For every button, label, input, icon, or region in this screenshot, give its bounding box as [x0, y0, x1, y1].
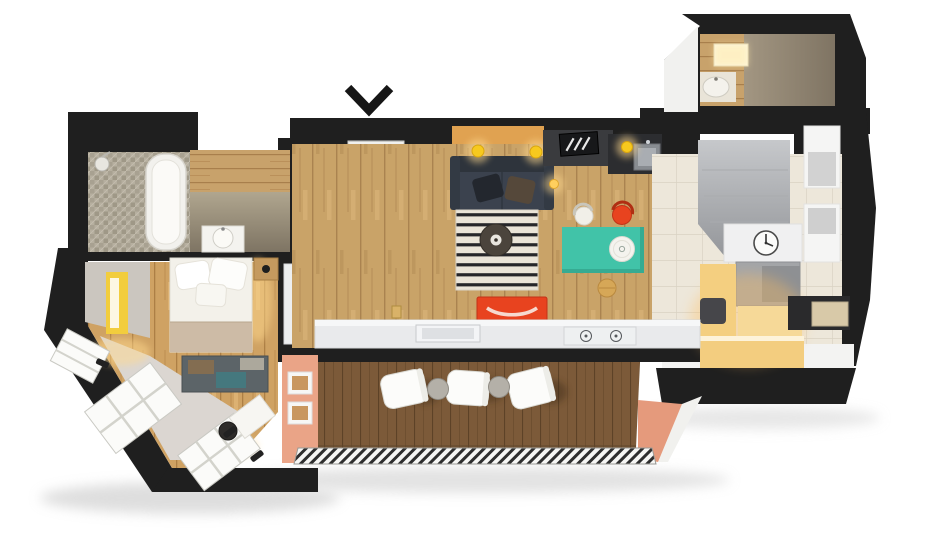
- wall-niche-upper: [804, 126, 840, 188]
- appliance-front: [812, 302, 848, 326]
- wall-niche-lower: [804, 204, 840, 262]
- wall-bay-bottom: [152, 468, 318, 492]
- striped-walkway: [294, 448, 656, 464]
- side-table: [489, 377, 510, 398]
- lit-wall-niche-inner: [110, 278, 119, 328]
- room-bathroom: [88, 150, 290, 252]
- foot-rug: [182, 356, 268, 392]
- rug-patch: [216, 372, 246, 388]
- wc-faucet: [714, 77, 718, 81]
- sink-faucet: [646, 140, 650, 144]
- washbasin: [213, 228, 233, 248]
- island-hob: [564, 327, 636, 345]
- pendant-lamp: [616, 136, 638, 158]
- backsplash-glow: [452, 126, 544, 144]
- coffee-table: [480, 224, 512, 256]
- stove-top: [559, 132, 598, 157]
- burner-center: [585, 335, 588, 338]
- side-table: [428, 379, 449, 400]
- floor-plan-canvas: [0, 0, 940, 533]
- sofa: [450, 156, 554, 210]
- counter-edge-highlight: [315, 320, 700, 326]
- dining-table: [562, 227, 644, 273]
- counter-highlight: [700, 336, 804, 341]
- wall-island-front: [262, 348, 705, 362]
- room-living: [292, 126, 662, 348]
- sofa-armrest: [450, 156, 460, 210]
- kitchen-stool-dark: [700, 298, 726, 324]
- pendant-lamp: [466, 139, 490, 163]
- wall-clock: [754, 231, 778, 255]
- nightstand: [254, 258, 278, 280]
- hanging-bulb: [544, 174, 564, 194]
- wood-stool: [598, 279, 616, 297]
- island-sink: [416, 325, 480, 342]
- wall-frame: [288, 402, 312, 424]
- rug-patch: [240, 358, 264, 370]
- bar-chair: [446, 370, 490, 407]
- table-edge: [562, 269, 644, 273]
- washbasin-faucet: [221, 227, 225, 231]
- rug-patch: [188, 360, 214, 374]
- floor-plan-render: [0, 0, 940, 533]
- room-wc: [700, 34, 835, 106]
- pillow: [195, 283, 226, 307]
- warm-counter-bottom: [700, 338, 804, 368]
- bed-blanket: [170, 322, 252, 352]
- burner-center: [615, 335, 618, 338]
- wall-bottom-right: [656, 368, 856, 404]
- table-lamp-icon: [262, 265, 270, 273]
- table-edge: [640, 227, 644, 273]
- terrace: [282, 355, 702, 464]
- clock-center: [765, 242, 768, 245]
- bathroom-wood-band: [190, 150, 290, 192]
- shower-head-icon: [95, 157, 109, 171]
- skylight-glow: [714, 44, 748, 66]
- bathtub-basin: [152, 160, 180, 244]
- wall-switch: [392, 306, 401, 318]
- kitchen-island: [315, 320, 700, 348]
- double-bed: [170, 257, 252, 352]
- wall-frame: [288, 372, 312, 394]
